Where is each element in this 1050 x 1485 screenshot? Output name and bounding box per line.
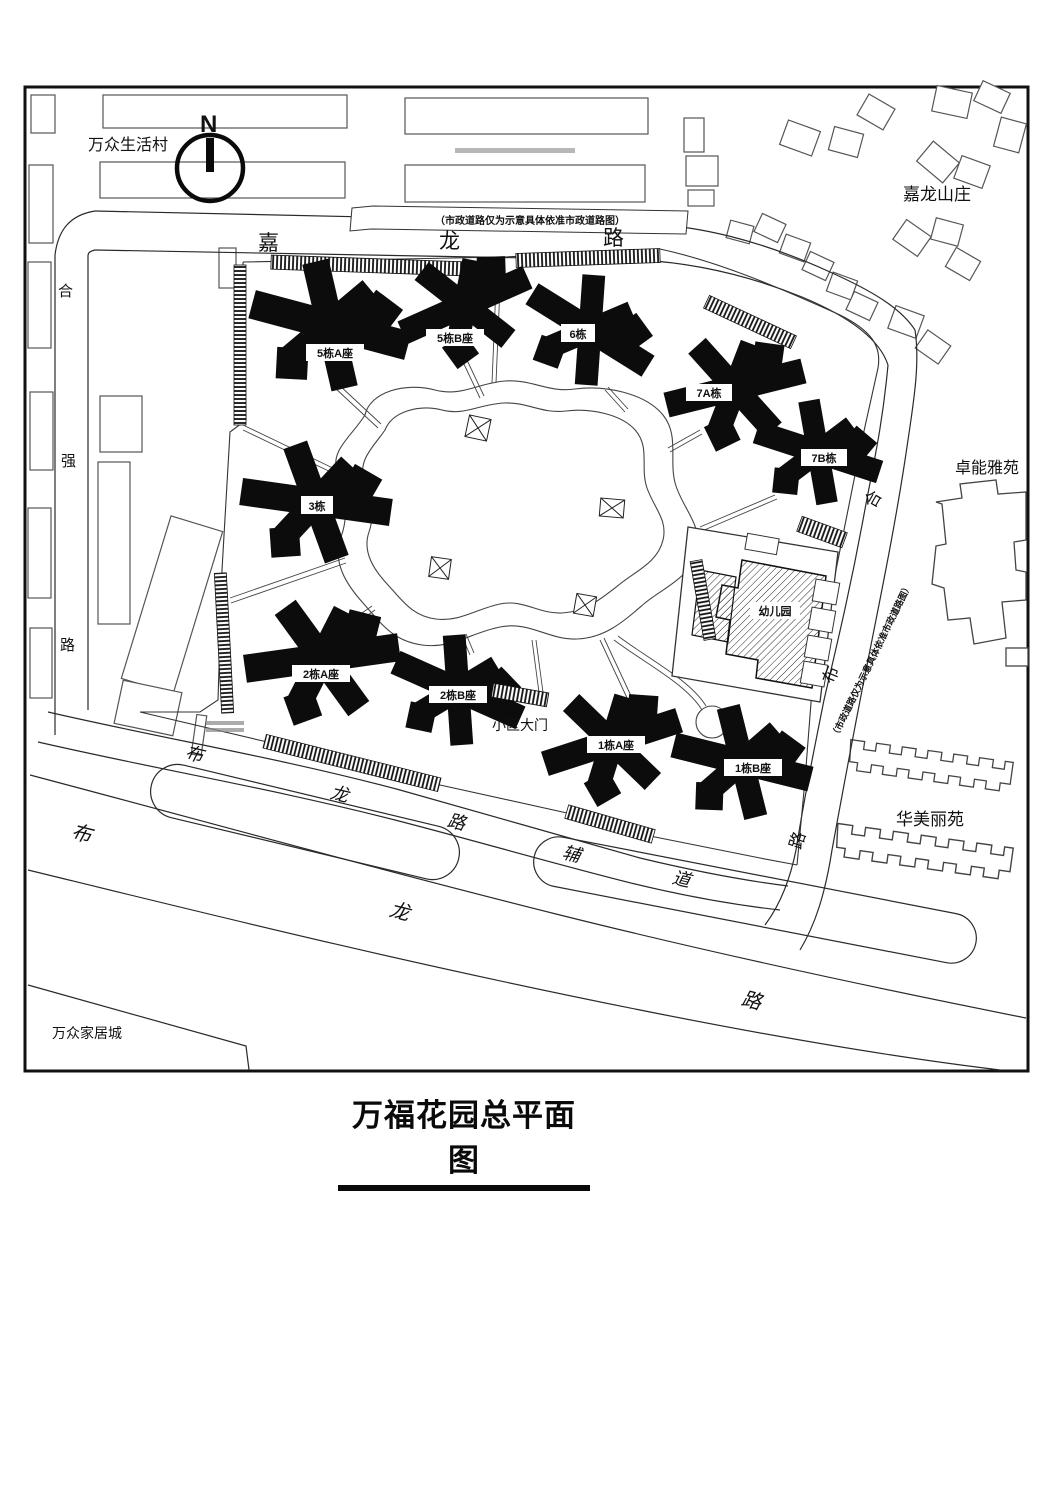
label-kindergarten: 幼儿园 [750, 602, 800, 619]
svg-text:路: 路 [60, 637, 75, 654]
site-plan-drawing: （市政道路仅为示意具体依准市政道路图） （市政道路仅为示意具体依准市政道路图） [0, 0, 1050, 1485]
svg-text:强: 强 [61, 453, 76, 470]
road-name-heqiang: 合 强 路 [58, 283, 76, 654]
compass-needle [206, 138, 214, 172]
svg-text:5栋A座: 5栋A座 [317, 346, 353, 360]
gate-note-smudge [206, 721, 244, 732]
road-note-top: （市政道路仅为示意具体依准市政道路图） [350, 206, 688, 234]
label-3: 3栋 [301, 496, 333, 514]
svg-text:1栋A座: 1栋A座 [598, 738, 634, 752]
label-1b: 1栋B座 [724, 759, 782, 776]
building-cluster-5b [381, 228, 551, 384]
svg-text:2栋A座: 2栋A座 [303, 667, 339, 681]
svg-text:5栋B座: 5栋B座 [437, 331, 473, 345]
neighborhood-zhuoneng: 卓能雅苑 [955, 459, 1019, 477]
label-5a: 5栋A座 [306, 344, 364, 361]
svg-text:7A栋: 7A栋 [696, 386, 721, 400]
svg-text:幼儿园: 幼儿园 [759, 604, 792, 618]
label-1a: 1栋A座 [587, 736, 645, 753]
svg-text:（市政道路仅为示意具体依准市政道路图）: （市政道路仅为示意具体依准市政道路图） [435, 214, 625, 227]
svg-text:路: 路 [739, 988, 766, 1015]
zhuoneng-building [932, 480, 1028, 666]
svg-text:道: 道 [670, 867, 695, 891]
road-note-right: （市政道路仅为示意具体依准市政道路图） [828, 581, 913, 740]
svg-text:龙: 龙 [387, 899, 414, 926]
wanzhong-village-blocks [100, 95, 718, 206]
neighborhood-jialong-villas: 嘉龙山庄 [903, 185, 971, 204]
svg-text:龙: 龙 [328, 782, 352, 806]
label-2a: 2栋A座 [292, 665, 350, 682]
svg-text:合: 合 [58, 283, 73, 300]
road-name-bulong: 布 龙 路 [69, 821, 766, 1015]
label-7b: 7B栋 [801, 449, 847, 466]
svg-text:辅: 辅 [560, 842, 585, 866]
road-name-bulong-service: 布 龙 路 辅 道 [183, 742, 695, 891]
svg-text:布: 布 [69, 821, 97, 848]
tower-clusters [233, 228, 896, 835]
label-6: 6栋 [561, 324, 595, 342]
neighborhood-huameili: 华美丽苑 [896, 810, 964, 829]
site-plan-page: （市政道路仅为示意具体依准市政道路图） （市政道路仅为示意具体依准市政道路图） [0, 0, 1050, 1485]
label-5b: 5栋B座 [426, 329, 484, 346]
drawing-title: 万福花园总平面图 [338, 1090, 590, 1191]
gate-label: 小区大门 [492, 717, 548, 733]
svg-text:路: 路 [603, 227, 624, 250]
svg-text:布: 布 [183, 742, 208, 766]
neighborhood-wanzhong-home-city: 万众家居城 [52, 1025, 122, 1041]
svg-text:3栋: 3栋 [308, 499, 325, 513]
svg-text:1栋B座: 1栋B座 [735, 761, 771, 775]
svg-text:嘉: 嘉 [258, 232, 279, 255]
building-cluster-2a [236, 586, 407, 731]
svg-text:路: 路 [786, 829, 809, 851]
pavilions [429, 415, 625, 617]
label-2b: 2栋B座 [429, 686, 487, 703]
jialong-villas-houses [726, 81, 1026, 364]
label-7a: 7A栋 [686, 384, 732, 401]
svg-text:7B栋: 7B栋 [811, 451, 836, 465]
svg-text:合: 合 [861, 487, 886, 511]
neighborhood-wanzhong-village: 万众生活村 [88, 136, 168, 154]
svg-text:6栋: 6栋 [569, 327, 586, 341]
illegible-note-smudge [455, 148, 575, 153]
svg-text:龙: 龙 [439, 230, 460, 253]
svg-text:2栋B座: 2栋B座 [440, 688, 476, 702]
